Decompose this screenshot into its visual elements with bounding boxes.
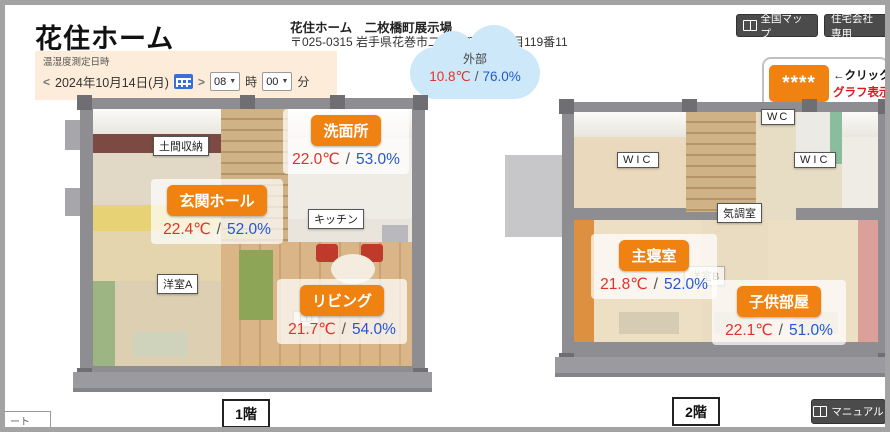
outside-humidity: 76.0% bbox=[482, 69, 520, 84]
sensor-washroom-tag[interactable]: 洗面所 bbox=[311, 115, 380, 146]
wall-post bbox=[240, 95, 255, 110]
partial-tooltip: ート bbox=[3, 411, 51, 430]
room-hall-2f bbox=[756, 112, 796, 227]
chevron-down-icon: ▼ bbox=[281, 78, 288, 85]
graph-link-label: グラフ表示へ bbox=[833, 84, 890, 100]
room-label-wic-left: WIC bbox=[617, 152, 659, 168]
national-map-button[interactable]: 全国マップ bbox=[736, 14, 818, 37]
bedroom-temperature: 21.8℃ bbox=[600, 276, 648, 293]
wall-post bbox=[878, 99, 890, 114]
sensor-main-bedroom: 主寝室 21.8℃/52.0% bbox=[591, 234, 717, 299]
room-stairs-2f bbox=[686, 112, 756, 212]
roof-edge-block bbox=[505, 155, 563, 237]
hour-unit: 時 bbox=[245, 73, 257, 90]
click-hint: ←クリック bbox=[833, 67, 890, 83]
bedroom-humidity: 52.0% bbox=[664, 276, 708, 293]
manual-label: マニュアル bbox=[831, 404, 883, 419]
sensor-kids-room: 子供部屋 22.1℃/51.0% bbox=[712, 280, 846, 345]
minute-select[interactable]: 00 ▼ bbox=[262, 72, 292, 91]
national-map-label: 全国マップ bbox=[761, 11, 811, 41]
password-stars-button[interactable]: **** bbox=[769, 65, 829, 102]
foundation bbox=[555, 357, 890, 377]
measure-date: 2024年10月14日(月) bbox=[55, 72, 169, 91]
entrance-temperature: 22.4℃ bbox=[163, 221, 211, 238]
manual-button[interactable]: マニュアル bbox=[811, 399, 886, 424]
next-day-button[interactable]: > bbox=[198, 75, 205, 89]
app-window: 花住ホーム 花住ホーム 二枚橋町展示場 〒025-0315 岩手県花巻市二枚橋町… bbox=[0, 0, 890, 432]
living-temperature: 21.7℃ bbox=[288, 321, 336, 338]
separator: / bbox=[336, 321, 352, 338]
room-label-wic-right: WIC bbox=[794, 152, 836, 168]
outside-cloud: 外部 10.8℃/76.0% bbox=[410, 47, 540, 99]
separator: / bbox=[648, 276, 664, 293]
company-only-label: 住宅会社専用 bbox=[831, 11, 881, 41]
minute-value: 00 bbox=[266, 76, 278, 88]
washroom-humidity: 53.0% bbox=[356, 151, 400, 168]
room-label-western-a: 洋室A bbox=[157, 274, 198, 294]
sensor-entrance-hall-tag[interactable]: 玄関ホール bbox=[167, 185, 266, 216]
foundation bbox=[73, 372, 432, 392]
wall-post bbox=[77, 95, 92, 110]
sensor-washroom: 洗面所 22.0℃/53.0% bbox=[283, 109, 409, 174]
room-label-kitchen: キッチン bbox=[308, 209, 364, 229]
room-air-room bbox=[796, 164, 842, 208]
wall-post bbox=[559, 99, 574, 114]
separator: / bbox=[211, 221, 227, 238]
outside-separator: / bbox=[471, 69, 483, 84]
sensor-entrance-hall: 玄関ホール 22.4℃/52.0% bbox=[151, 179, 283, 244]
living-humidity: 54.0% bbox=[352, 321, 396, 338]
floor1-caption: 1階 bbox=[222, 399, 270, 428]
room-label-air-room: 気調室 bbox=[717, 203, 762, 223]
room-wic-right bbox=[842, 112, 878, 208]
minute-unit: 分 bbox=[297, 73, 309, 90]
washroom-temperature: 22.0℃ bbox=[292, 151, 340, 168]
sensor-kids-room-tag[interactable]: 子供部屋 bbox=[737, 286, 821, 317]
datetime-panel: 温湿度測定日時 < 2024年10月14日(月) > 08 ▼ 時 00 ▼ 分 bbox=[35, 51, 337, 100]
kids-humidity: 51.0% bbox=[789, 322, 833, 339]
hour-value: 08 bbox=[214, 76, 226, 88]
outside-label: 外部 bbox=[410, 50, 540, 67]
chevron-down-icon: ▼ bbox=[229, 78, 236, 85]
separator: / bbox=[340, 151, 356, 168]
prev-day-button[interactable]: < bbox=[43, 75, 50, 89]
company-only-button[interactable]: 住宅会社専用 bbox=[824, 14, 888, 37]
sensor-main-bedroom-tag[interactable]: 主寝室 bbox=[619, 240, 688, 271]
room-label-doma: 土間収納 bbox=[153, 136, 209, 156]
sensor-living-tag[interactable]: リビング bbox=[300, 285, 384, 316]
sensor-living: リビング 21.7℃/54.0% bbox=[277, 279, 407, 344]
hour-select[interactable]: 08 ▼ bbox=[210, 72, 240, 91]
wall-post bbox=[330, 95, 345, 110]
separator: / bbox=[773, 322, 789, 339]
room-label-wc: WC bbox=[761, 109, 795, 125]
outside-temperature: 10.8℃ bbox=[429, 69, 470, 84]
entrance-humidity: 52.0% bbox=[227, 221, 271, 238]
kids-temperature: 22.1℃ bbox=[725, 322, 773, 339]
manual-book-icon bbox=[813, 406, 827, 417]
map-icon bbox=[743, 20, 757, 31]
datetime-label: 温湿度測定日時 bbox=[43, 54, 329, 68]
floor2-caption: 2階 bbox=[672, 397, 720, 426]
calendar-icon[interactable] bbox=[174, 74, 193, 89]
